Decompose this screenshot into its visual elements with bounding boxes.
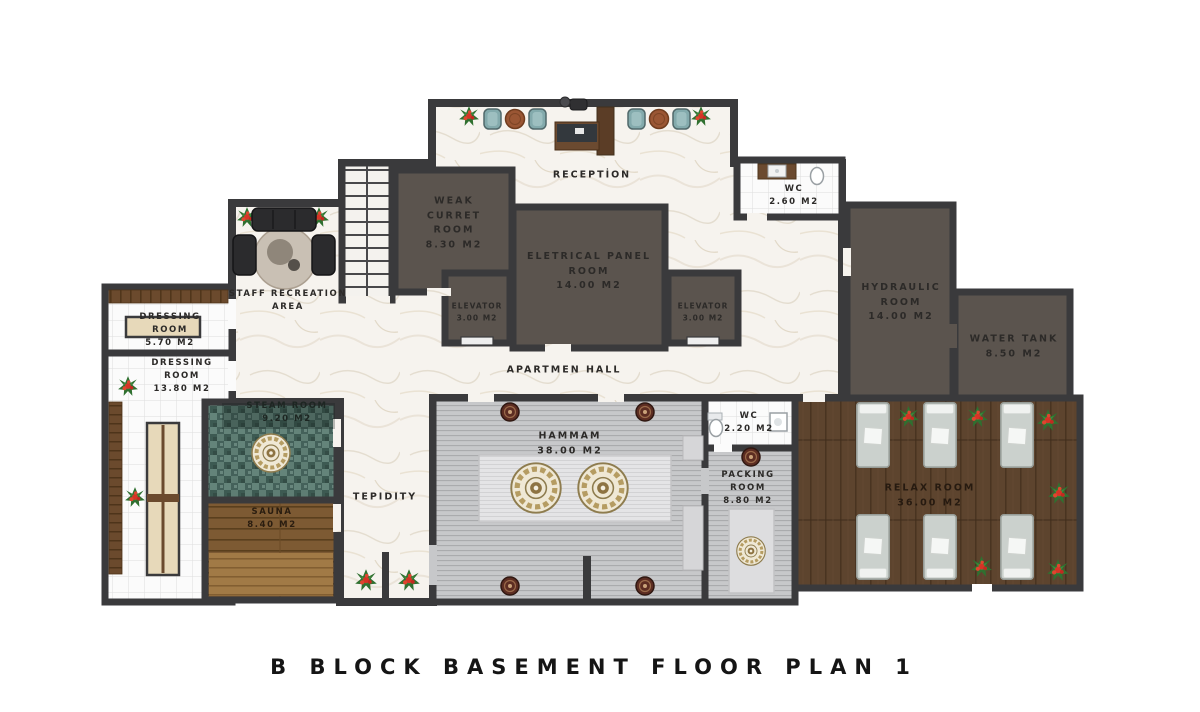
basin-icon xyxy=(636,403,654,421)
room-area-line: 13.80 M2 xyxy=(151,384,212,397)
room-label-elevator-left: ELEVATOR 3.00 M2 xyxy=(452,300,503,323)
basin-icon xyxy=(742,448,760,466)
room-area-line: 36.00 M2 xyxy=(885,496,976,511)
room-name-line: ROOM xyxy=(139,324,200,337)
hammam-platform-icon xyxy=(479,455,671,522)
room-label-relax: RELAX ROOM 36.00 M2 xyxy=(885,481,976,510)
lounger-icon xyxy=(924,403,956,467)
room-area-line: 3.00 M2 xyxy=(452,312,503,324)
room-area-line: 8.80 M2 xyxy=(721,496,774,509)
room-name-line: ELETRICAL PANEL xyxy=(527,250,651,265)
room-name-line: HYDRAULIC xyxy=(861,281,940,296)
hammam-rosette-icon xyxy=(578,463,627,512)
room-label-elevator-right: ELEVATOR 3.00 M2 xyxy=(678,300,729,323)
room-name-line: SAUNA xyxy=(247,506,297,519)
lounger-icon xyxy=(857,515,889,579)
room-name-line: ROOM xyxy=(861,296,940,311)
locker-shelf-icon xyxy=(109,402,122,574)
room-name-line: ROOM xyxy=(426,224,483,239)
room-area-line: 14.00 M2 xyxy=(527,279,651,294)
armchair-icon xyxy=(312,235,335,275)
room-label-tepidity: TEPIDITY xyxy=(353,491,417,506)
room-label-sauna: SAUNA 8.40 M2 xyxy=(247,506,297,532)
floor-plan-canvas: RECEPTİON WEAK CURRET ROOM 8.30 M2 ELETR… xyxy=(0,0,1200,712)
steam-rosette-icon xyxy=(252,434,290,472)
room-area-line: 8.40 M2 xyxy=(247,519,297,532)
hammam-bench-icon xyxy=(683,506,703,570)
room-area-line: 14.00 M2 xyxy=(861,310,940,325)
hammam-rosette-icon xyxy=(511,463,560,512)
room-label-wc-mid: WC 2.20 M2 xyxy=(724,410,774,436)
room-label-hydraulic: HYDRAULIC ROOM 14.00 M2 xyxy=(861,281,940,325)
room-name-line: RELAX ROOM xyxy=(885,481,976,496)
room-area-line: 2.60 M2 xyxy=(769,196,819,209)
room-name-line: AREA xyxy=(229,301,347,314)
room-label-packing: PACKING ROOM 8.80 M2 xyxy=(721,469,774,509)
waiting-seats-icon xyxy=(484,109,546,129)
room-name-line: PACKING xyxy=(721,469,774,482)
basin-icon xyxy=(501,403,519,421)
room-area-line: 38.00 M2 xyxy=(537,444,602,459)
room-name-line: APARTMEN HALL xyxy=(507,364,622,379)
room-area-line: 5.70 M2 xyxy=(139,338,200,351)
room-name-line: STAFF RECREATION xyxy=(229,288,347,301)
room-label-dressing-small: DRESSING ROOM 5.70 M2 xyxy=(139,311,200,351)
room-name-line: STEAM ROOM xyxy=(246,400,327,413)
room-label-weak-current: WEAK CURRET ROOM 8.30 M2 xyxy=(426,195,483,254)
room-label-reception: RECEPTİON xyxy=(553,169,631,184)
room-label-apartment-hall: APARTMEN HALL xyxy=(507,364,622,379)
room-name-line: WEAK xyxy=(426,195,483,210)
packing-rosette-icon xyxy=(737,537,766,566)
armchair-icon xyxy=(233,235,256,275)
room-label-dressing-large: DRESSING ROOM 13.80 M2 xyxy=(151,357,212,397)
basin-icon xyxy=(636,577,654,595)
lounger-icon xyxy=(1001,515,1033,579)
locker-shelf-icon xyxy=(109,290,228,303)
room-name-line: DRESSING xyxy=(139,311,200,324)
room-label-staff-recreation: STAFF RECREATION AREA xyxy=(229,288,347,314)
hammam-bench-icon xyxy=(683,436,703,460)
room-name-line: ROOM xyxy=(151,370,212,383)
basin-icon xyxy=(501,577,519,595)
room-name-line: CURRET xyxy=(426,209,483,224)
room-area-line: 8.50 M2 xyxy=(970,347,1059,362)
room-area-line: 3.00 M2 xyxy=(678,312,729,324)
room-name-line: DRESSING xyxy=(151,357,212,370)
room-label-water-tank: WATER TANK 8.50 M2 xyxy=(970,332,1059,361)
room-name-line: ROOM xyxy=(527,265,651,280)
waiting-seats-icon xyxy=(628,109,690,129)
room-name-line: ELEVATOR xyxy=(678,300,729,312)
room-name-line: ELEVATOR xyxy=(452,300,503,312)
plan-title: B BLOCK BASEMENT FLOOR PLAN 1 xyxy=(270,655,918,679)
room-area-line: 8.30 M2 xyxy=(426,239,483,254)
lounger-icon xyxy=(857,403,889,467)
room-area-line: 9.20 M2 xyxy=(246,413,327,426)
room-name-line: RECEPTİON xyxy=(553,169,631,184)
lounger-icon xyxy=(1001,403,1033,467)
room-area-line: 2.20 M2 xyxy=(724,423,774,436)
room-label-steam: STEAM ROOM 9.20 M2 xyxy=(246,400,327,426)
sofa-icon xyxy=(252,208,316,231)
room-name-line: WC xyxy=(724,410,774,423)
room-name-line: WATER TANK xyxy=(970,332,1059,347)
lounger-icon xyxy=(924,515,956,579)
room-name-line: ROOM xyxy=(721,482,774,495)
room-label-hammam: HAMMAM 38.00 M2 xyxy=(537,429,602,458)
room-name-line: TEPIDITY xyxy=(353,491,417,506)
room-label-wc-top: WC 2.60 M2 xyxy=(769,183,819,209)
room-name-line: WC xyxy=(769,183,819,196)
stairwell xyxy=(342,163,392,300)
room-label-electrical: ELETRICAL PANEL ROOM 14.00 M2 xyxy=(527,250,651,294)
room-name-line: HAMMAM xyxy=(537,429,602,444)
